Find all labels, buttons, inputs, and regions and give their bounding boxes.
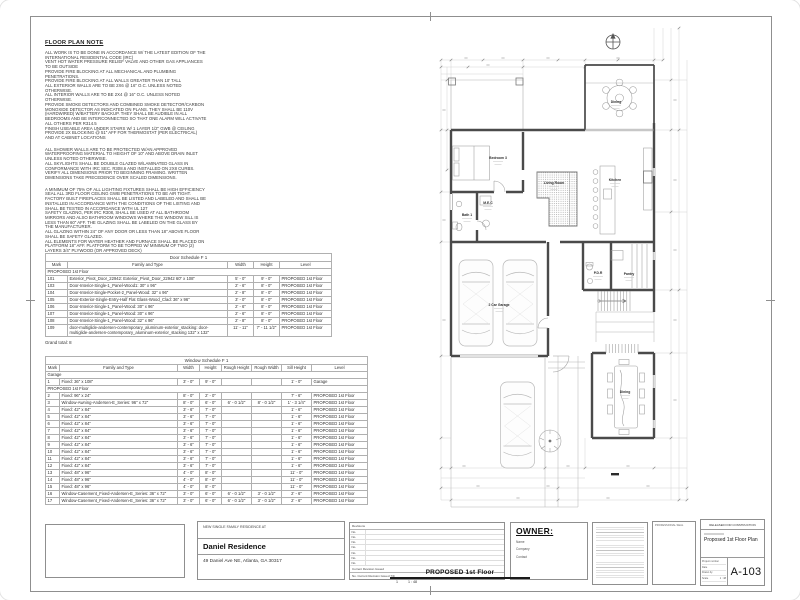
revisions-header: Revisions xyxy=(350,523,504,530)
sheet-meta-row: Scale1 : 48 xyxy=(702,576,726,582)
room-label: Dining xyxy=(611,100,622,104)
fine-print-block xyxy=(596,545,644,557)
drawing-sheet: FLOOR PLAN NOTE ALL WORK IS TO BE DONE I… xyxy=(0,0,800,600)
note-line: SAFETY GLAZING, PER IRC R308, SHALL BE U… xyxy=(45,211,207,230)
schedule-row: 12Fixed: 42" x 84"3' - 6"7' - 0"1' - 6"P… xyxy=(46,463,368,470)
schedule-row: 4Fixed: 42" x 84"3' - 6"7' - 0"1' - 6"PR… xyxy=(46,407,368,414)
schedule-row: 5Fixed: 42" x 84"3' - 6"7' - 0"1' - 6"PR… xyxy=(46,414,368,421)
floor-plan-drawing: DiningBedroom 3M.E.CBath 1Living RoomKit… xyxy=(428,20,773,514)
schedule-table: Door Schedule F 1MarkFamily and TypeWidt… xyxy=(45,253,332,337)
schedule-row: 13Fixed: 48" x 96"4' - 0"8' - 0"11' - 0"… xyxy=(46,470,368,477)
revision-no-label: No. xyxy=(350,530,366,534)
walls xyxy=(450,65,655,438)
revisions-rows: No.No.No.No.No.No.No. xyxy=(350,530,504,566)
schedule-table: Window Schedule F 1MarkFamily and TypeWi… xyxy=(45,356,368,505)
fine-print-block xyxy=(596,527,644,541)
owner-field: Name xyxy=(516,540,582,544)
door-schedule-table: Door Schedule F 1MarkFamily and TypeWidt… xyxy=(45,253,331,337)
sheet-meta-rows: Project numberDateDrawn byScale1 : 48 xyxy=(701,558,728,585)
schedule-group-row: Garage xyxy=(46,372,368,379)
floor-plan-notes: FLOOR PLAN NOTE ALL WORK IS TO BE DONE I… xyxy=(45,40,207,261)
note-line: ALL SHOWER WALLS ARE TO BE PROTECTED W/A… xyxy=(45,148,207,162)
sheet-info-box: RELEASED FOR CONSTRUCTION Proposed 1st F… xyxy=(700,519,765,586)
schedule-group-row: PROPOSED 1st Floor xyxy=(46,386,368,393)
revision-no-label: No. xyxy=(350,551,366,555)
view-number: 1 xyxy=(396,580,398,584)
revision-no-label: No. xyxy=(350,540,366,544)
view-title-label: PROPOSED 1st Floor xyxy=(390,569,530,576)
schedule-row: 10Fixed: 42" x 84"3' - 6"7' - 0"1' - 6"P… xyxy=(46,449,368,456)
room-label: Bath 1 xyxy=(462,213,472,217)
schedule-row: 109door-multiglide-andersen-contemporary… xyxy=(46,325,332,337)
seal-label: PROFESSIONAL SEAL xyxy=(655,524,693,527)
note-section: ALL SHOWER WALLS ARE TO BE PROTECTED W/A… xyxy=(45,148,207,181)
sheet-number: A-103 xyxy=(728,558,764,585)
schedule-header-row: MarkFamily and TypeWidthHeightLevel xyxy=(46,262,332,269)
project-address: 49 Daniel Ave NE, Atlanta, GA 30317 xyxy=(198,555,344,568)
schedule-row: 3Window-Awning-Andersen-E_Series: 96" x … xyxy=(46,400,368,407)
room-label: Living Room xyxy=(544,181,565,185)
owner-field: Company xyxy=(516,547,582,551)
floor-plan-note-body: ALL WORK IS TO BE DONE IN ACCORDANCE W/ … xyxy=(45,51,207,254)
note-section: ALL WORK IS TO BE DONE IN ACCORDANCE W/ … xyxy=(45,51,207,141)
schedule-row: 14Fixed: 48" x 96"4' - 0"8' - 0"11' - 0"… xyxy=(46,477,368,484)
schedule-row: 103Door-Interior-Single-1_Panel-Wood1: 3… xyxy=(46,283,332,290)
cars xyxy=(459,260,537,468)
schedule-row: 8Fixed: 42" x 84"3' - 6"7' - 0"1' - 6"PR… xyxy=(46,435,368,442)
view-scale-value: 1 : 48 xyxy=(408,580,417,584)
view-title-rule xyxy=(390,577,530,579)
released-status: RELEASED FOR CONSTRUCTION xyxy=(701,520,764,530)
note-line: PROVIDE 2X BLOCKING @ 51" AFF FOR THERMO… xyxy=(45,131,207,140)
revision-no-label: No. xyxy=(350,545,366,549)
schedule-row: 2Fixed: 96" x 24"8' - 0"2' - 0"7' - 6"PR… xyxy=(46,393,368,400)
door-schedule: Door Schedule F 1MarkFamily and TypeWidt… xyxy=(45,253,331,345)
view-scale: 1 1 : 48 xyxy=(390,580,530,584)
view-title: PROPOSED 1st Floor 1 1 : 48 xyxy=(390,569,530,584)
window-schedule-table: Window Schedule F 1MarkFamily and TypeWi… xyxy=(45,356,367,505)
note-line: VERIFY ALL DIMENSIONS PRIOR TO BEGINNING… xyxy=(45,171,207,180)
schedule-row: 104Door-Interior-Single-Pocket-2_Panel-W… xyxy=(46,290,332,297)
professional-seal-box: PROFESSIONAL SEAL xyxy=(652,521,696,585)
schedule-row: 1Fixed: 36" x 108"3' - 0"9' - 0"1' - 0"G… xyxy=(46,379,368,386)
schedule-title: Window Schedule F 1 xyxy=(46,357,368,365)
room-label: Bedroom 3 xyxy=(489,156,507,160)
room-label: P.D.R xyxy=(594,271,603,275)
schedule-row: 7Fixed: 42" x 84"3' - 6"7' - 0"1' - 6"PR… xyxy=(46,428,368,435)
owner-field: Contact xyxy=(516,555,582,559)
schedule-row: 107Door-Interior-Single-1_Panel-Wood: 30… xyxy=(46,311,332,318)
note-line: ALL ELEMENTS FOR WATER HEATHER AND FURNA… xyxy=(45,240,207,254)
schedule-row: 101Exterior_Pivot_Door_22942: Exterior_P… xyxy=(46,276,332,283)
door-schedule-grand-total: Grand total: 8 xyxy=(45,340,331,345)
schedule-row: 106Door-Interior-Single-1_Panel-Wood: 30… xyxy=(46,304,332,311)
room-label: Dining xyxy=(620,390,631,394)
floor-plan-note-title: FLOOR PLAN NOTE xyxy=(45,40,207,46)
room-label: 2 Car Garage xyxy=(488,303,509,307)
general-notes-box xyxy=(592,522,648,585)
room-label: Kitchen xyxy=(609,178,621,182)
logo-box xyxy=(45,524,185,578)
project-name: Daniel Residence xyxy=(198,538,344,555)
room-label: Pantry xyxy=(624,272,635,276)
owner-label: OWNER: xyxy=(516,526,582,536)
owner-fields: NameCompanyContact xyxy=(516,540,582,559)
room-label: M.E.C xyxy=(483,201,493,205)
schedule-header-row: MarkFamily and TypeWidthHeightRough Heig… xyxy=(46,365,368,372)
schedule-row: 16Window-Casement_Fixed-Andersen-E_Serie… xyxy=(46,491,368,498)
sheet-name-cell: Proposed 1st Floor Plan xyxy=(701,530,764,558)
schedule-row: 11Fixed: 42" x 84"3' - 6"7' - 0"1' - 6"P… xyxy=(46,456,368,463)
border-tick-bottom xyxy=(430,586,431,595)
schedule-row: 108Door-Interior-Single-1_Panel-Wood: 32… xyxy=(46,318,332,325)
fine-print-block xyxy=(596,562,644,580)
window-schedule: Window Schedule F 1MarkFamily and TypeWi… xyxy=(45,356,367,505)
revision-no-label: No. xyxy=(350,561,366,565)
sheet-name: Proposed 1st Floor Plan xyxy=(704,537,761,543)
revision-no-label: No. xyxy=(350,556,366,560)
north-arrow-icon xyxy=(606,33,620,49)
note-section: A MINIMUM OF 75% OF ALL LIGHTING FIXTURE… xyxy=(45,188,207,254)
schedule-row: 6Fixed: 42" x 84"3' - 6"7' - 0"1' - 6"PR… xyxy=(46,421,368,428)
project-info-box: NEW SINGLE FAMILY RESIDENCE AT Daniel Re… xyxy=(197,521,345,580)
note-line: PROVIDE SMOKE DETECTORS AND COMBINED SMO… xyxy=(45,103,207,127)
revision-no-label: No. xyxy=(350,535,366,539)
schedule-row: 105Door-Exterior-Single-Entry-Half Flat … xyxy=(46,297,332,304)
schedule-row: 9Fixed: 42" x 84"3' - 6"7' - 0"1' - 6"PR… xyxy=(46,442,368,449)
schedule-group-row: PROPOSED 1st Floor xyxy=(46,269,332,276)
project-intro: NEW SINGLE FAMILY RESIDENCE AT xyxy=(198,522,344,538)
schedule-row: 17Window-Casement_Fixed-Andersen-E_Serie… xyxy=(46,498,368,505)
border-tick-left xyxy=(26,300,35,301)
schedule-row: 15Fixed: 48" x 96"4' - 0"8' - 0"11' - 0"… xyxy=(46,484,368,491)
sheet-name-caption xyxy=(704,533,724,535)
note-line: FACTORY BUILT FIREPLACES SHALL BE LISTED… xyxy=(45,197,207,211)
schedule-title: Door Schedule F 1 xyxy=(46,254,332,262)
